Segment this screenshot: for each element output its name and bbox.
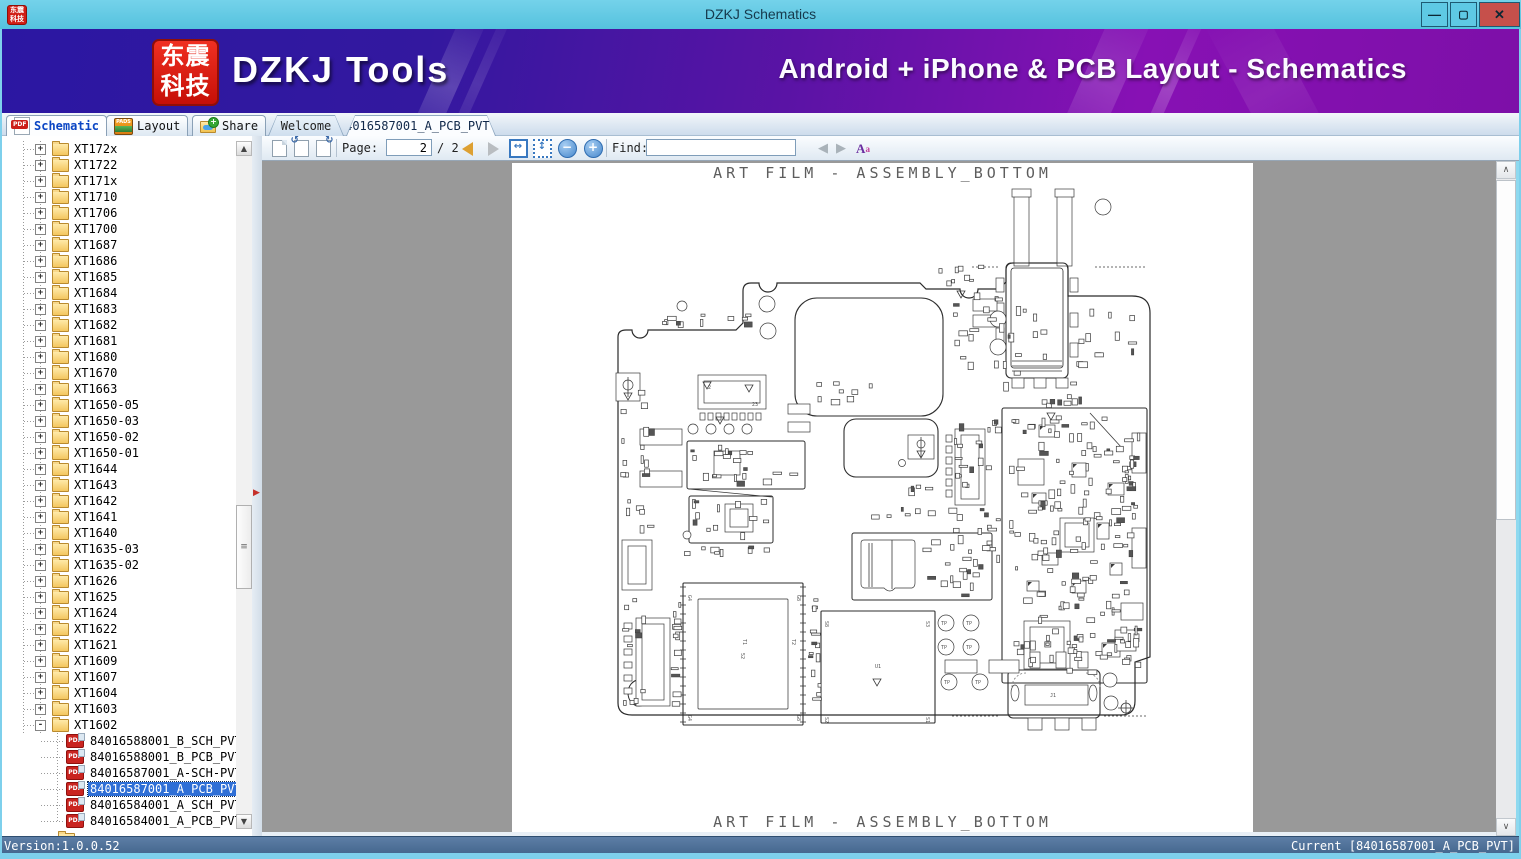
svg-text:TP: TP	[944, 680, 950, 686]
tree-stub	[24, 469, 35, 470]
tree-folder-label: XT1681	[72, 334, 119, 348]
folder-icon	[52, 255, 69, 268]
scroll-down-button[interactable]: ∨	[1496, 818, 1516, 836]
viewer-scrollbar-thumb[interactable]	[1496, 180, 1516, 520]
rotate-left-button[interactable]: ↺	[290, 138, 312, 159]
folder-icon	[52, 447, 69, 460]
tree-stub	[41, 789, 63, 790]
folder-icon	[52, 159, 69, 172]
expand-toggle-icon[interactable]: +	[35, 256, 46, 267]
expand-toggle-icon[interactable]: +	[35, 320, 46, 331]
tree-stub	[24, 693, 35, 694]
tree-stub	[24, 293, 35, 294]
tree-stub	[24, 725, 35, 726]
page-icon	[272, 140, 287, 157]
folder-icon	[52, 415, 69, 428]
pdf-file-icon: PDF	[66, 798, 84, 812]
arrow-up-icon: ▲	[241, 144, 247, 153]
expand-toggle-icon[interactable]: +	[35, 688, 46, 699]
tree-folder-label: XT1684	[72, 286, 119, 300]
banner-tagline: Android + iPhone & PCB Layout - Schemati…	[778, 53, 1407, 85]
expand-toggle-icon[interactable]: +	[35, 192, 46, 203]
rotate-right-icon: ↻	[316, 140, 331, 157]
find-label: Find:	[612, 141, 648, 155]
window-border	[0, 853, 1521, 859]
tree-stub	[24, 357, 35, 358]
expand-toggle-icon[interactable]: +	[35, 480, 46, 491]
expand-toggle-icon[interactable]: +	[35, 512, 46, 523]
expand-toggle-icon[interactable]: +	[35, 336, 46, 347]
tree-folder-label: XT1686	[72, 254, 119, 268]
tree-folder-row[interactable]: +XT1700	[2, 221, 236, 237]
pdf-file-icon: PDF	[66, 750, 84, 764]
expand-toggle-icon[interactable]: +	[35, 368, 46, 379]
maximize-button[interactable]: ▢	[1450, 2, 1477, 27]
share-folder-icon: +	[200, 119, 218, 133]
tree-folder-label: XT1643	[72, 478, 119, 492]
app-window: 东震科技 DZKJ Schematics — ▢ ✕ 东震科技 DZKJ Too…	[0, 0, 1521, 859]
expand-toggle-icon[interactable]: +	[35, 544, 46, 555]
expand-toggle-icon[interactable]: +	[35, 656, 46, 667]
tree-folder-row[interactable]: +XT1603	[2, 701, 236, 717]
collapse-toggle-icon[interactable]: -	[35, 720, 46, 731]
folder-icon	[52, 287, 69, 300]
folder-icon	[52, 527, 69, 540]
expand-toggle-icon[interactable]: +	[35, 560, 46, 571]
tree-folder-label: XT1680	[72, 350, 119, 364]
drawing-title-bottom: ART FILM - ASSEMBLY_BOTTOM	[512, 813, 1253, 831]
svg-text:T1: T1	[741, 639, 747, 645]
tree-stub	[24, 229, 35, 230]
tree-folder-label: XT1644	[72, 462, 119, 476]
tree-stub	[24, 645, 35, 646]
page-label: Page:	[342, 141, 378, 155]
arrow-down-icon: ▼	[241, 817, 247, 826]
tree-folder-row[interactable]: +XT1626	[2, 573, 236, 589]
tree-stub	[24, 389, 35, 390]
tree-stub	[24, 581, 35, 582]
tree-stub	[41, 757, 63, 758]
grip-icon: ≡	[240, 542, 248, 552]
svg-text:G8: G8	[795, 715, 801, 721]
folder-icon	[52, 495, 69, 508]
folder-icon	[52, 351, 69, 364]
expand-toggle-icon[interactable]: +	[35, 672, 46, 683]
tree-stub	[24, 325, 35, 326]
expand-toggle-icon[interactable]: +	[35, 592, 46, 603]
svg-text:52: 52	[739, 653, 745, 659]
folder-icon	[52, 687, 69, 700]
scroll-up-button[interactable]: ▲	[236, 141, 252, 156]
svg-text:G4: G4	[686, 595, 692, 601]
tree-folder-row[interactable]: +XT1635-03	[2, 541, 236, 557]
folder-icon	[52, 319, 69, 332]
folder-icon	[52, 463, 69, 476]
tree-folder-row[interactable]: +XT1681	[2, 333, 236, 349]
pads-icon: PADS	[114, 118, 133, 135]
svg-text:U1: U1	[875, 664, 881, 670]
tree-folder-row[interactable]: +XT1635-02	[2, 557, 236, 573]
folder-icon	[52, 607, 69, 620]
tab-label: Layout	[137, 119, 180, 133]
tab-label: Schematic	[34, 119, 99, 133]
tree-folder-label: XT1609	[72, 654, 119, 668]
tree-folder-label: XT1625	[72, 590, 119, 604]
tree-folder-row[interactable]: +XT1687	[2, 237, 236, 253]
tree-file-label: 84016584001_A_SCH_PVT	[88, 798, 244, 812]
tree-folder-label: XT172x	[72, 142, 119, 156]
next-page-button[interactable]	[482, 138, 504, 159]
find-previous-icon: ◀	[818, 141, 828, 156]
expand-toggle-icon[interactable]: +	[35, 176, 46, 187]
pdf-file-icon: PDF	[66, 814, 84, 828]
expand-toggle-icon[interactable]: +	[35, 352, 46, 363]
folder-icon	[52, 431, 69, 444]
tree-folder-row[interactable]: +XT1682	[2, 317, 236, 333]
tree-folder-label: XT1650-03	[72, 414, 141, 428]
svg-text:TP: TP	[941, 645, 947, 651]
tree-folder-label: XT1685	[72, 270, 119, 284]
tree-rows: +XT172x+XT1722+XT171x+XT1710+XT1706+XT17…	[2, 141, 236, 836]
viewer-scrollbar[interactable]: ∧ ∨	[1496, 161, 1516, 836]
pdf-viewer[interactable]: ART FILM - ASSEMBLY_BOTTOM 223S8S3S2S1U1…	[262, 161, 1496, 836]
zoom-out-button[interactable]: −	[556, 138, 578, 159]
tree-stub	[41, 805, 63, 806]
expand-toggle-icon[interactable]: +	[35, 240, 46, 251]
chevron-up-icon: ∧	[1503, 165, 1510, 175]
folder-icon	[52, 303, 69, 316]
tree-folder-label: XT1683	[72, 302, 119, 316]
folder-icon	[52, 399, 69, 412]
tree-folder-row[interactable]: +XT1621	[2, 637, 236, 653]
tree-file-row[interactable]: PDF84016584001_A_PCB_PVT	[2, 813, 236, 829]
tree-stub	[24, 517, 35, 518]
tree-file-row[interactable]: PDF84016587001_A-SCH-PVT	[2, 765, 236, 781]
folder-icon	[52, 175, 69, 188]
close-button[interactable]: ✕	[1479, 2, 1520, 27]
tree-file-row[interactable]: PDF84016584001_A_SCH_PVT	[2, 797, 236, 813]
tree-folder-row[interactable]: +XT1609	[2, 653, 236, 669]
tree-folder-row[interactable]: +XT1684	[2, 285, 236, 301]
zoom-in-button[interactable]: +	[582, 138, 604, 159]
folder-icon	[52, 639, 69, 652]
tree-file-label: 84016588001_B_PCB_PVT	[88, 750, 244, 764]
tree-folder-row[interactable]: +XT1650-05	[2, 397, 236, 413]
svg-text:J1: J1	[1050, 693, 1056, 699]
window-title: DZKJ Schematics	[0, 0, 1521, 29]
tab-strip: PDF Schematic PADS Layout + Share Welcom…	[2, 113, 1519, 136]
pdf-page: ART FILM - ASSEMBLY_BOTTOM 223S8S3S2S1U1…	[512, 163, 1253, 836]
tree-file-label: 84016588001_B_SCH_PVT	[88, 734, 244, 748]
expand-toggle-icon[interactable]: +	[35, 576, 46, 587]
tree-folder-row[interactable]: +XT1686	[2, 253, 236, 269]
pdf-file-icon: PDF	[66, 766, 84, 780]
tree-folder-label: XT1722	[72, 158, 119, 172]
tree-folder-row[interactable]: +XT1644	[2, 461, 236, 477]
tree-stub	[24, 437, 35, 438]
tree-stub	[24, 533, 35, 534]
svg-text:G4: G4	[686, 715, 692, 721]
tree-scrollbar[interactable]: ▲ ≡ ▼	[236, 141, 252, 829]
svg-text:S8: S8	[823, 621, 829, 627]
tree-stub	[24, 485, 35, 486]
pdf-file-icon: PDF	[66, 782, 84, 796]
tree-stub	[24, 613, 35, 614]
tree-folder-row[interactable]: +XT172x	[2, 141, 236, 157]
tree-file-label: 84016587001_A_PCB_PVT	[88, 782, 244, 796]
folder-icon	[52, 671, 69, 684]
tree-folder-row[interactable]: +XT1607	[2, 669, 236, 685]
tree-folder-label: XT1706	[72, 206, 119, 220]
tree-folder-label: XT1663	[72, 382, 119, 396]
previous-page-icon	[462, 142, 473, 156]
tree-folder-row[interactable]: +XT1670	[2, 365, 236, 381]
tree-scrollbar-thumb[interactable]: ≡	[236, 505, 252, 589]
tree-file-row[interactable]: PDF84016588001_B_SCH_PVT	[2, 733, 236, 749]
tree-stub	[24, 453, 35, 454]
folder-icon	[52, 239, 69, 252]
doc-tab-label: 84016587001_A_PCB_PVT	[338, 119, 490, 133]
tree-stub	[41, 773, 63, 774]
expand-toggle-icon[interactable]: +	[35, 704, 46, 715]
expand-toggle-icon[interactable]: +	[35, 272, 46, 283]
tree-folder-label: XT1710	[72, 190, 119, 204]
tree-file-row[interactable]: PDF84016587001_A_PCB_PVT	[2, 781, 236, 797]
tree-folder-row[interactable]: +XT1640	[2, 525, 236, 541]
expand-toggle-icon[interactable]: +	[35, 464, 46, 475]
tree-stub	[24, 629, 35, 630]
tree-stub	[24, 245, 35, 246]
version-text: Version:1.0.0.52	[4, 839, 120, 853]
tree-folder-row[interactable]: +XT1624	[2, 605, 236, 621]
expand-toggle-icon[interactable]: +	[35, 640, 46, 651]
tree-stub	[24, 709, 35, 710]
tree-folder-label: XT1687	[72, 238, 119, 252]
tree-stub	[24, 181, 35, 182]
tree-stub	[24, 373, 35, 374]
minimize-icon: —	[1428, 7, 1441, 22]
tree-stub	[24, 549, 35, 550]
tree-folder-label: XT1650-01	[72, 446, 141, 460]
tree-folder-row[interactable]: +XT1663	[2, 381, 236, 397]
tab-schematic[interactable]: PDF Schematic	[6, 115, 107, 136]
new-page-button[interactable]	[268, 138, 290, 159]
expand-toggle-icon[interactable]: +	[35, 224, 46, 235]
expand-toggle-icon[interactable]: +	[35, 208, 46, 219]
folder-icon	[52, 719, 69, 732]
tree-folder-label: XT1682	[72, 318, 119, 332]
tree-folder-row[interactable]: +XT1650-03	[2, 413, 236, 429]
folder-icon	[52, 511, 69, 524]
svg-text:TP: TP	[966, 621, 972, 627]
tab-label: Share	[222, 119, 258, 133]
tree-folder-label: XT1670	[72, 366, 119, 380]
tree-folder-row[interactable]: +XT1710	[2, 189, 236, 205]
tree-folder-row[interactable]: +XT1643	[2, 477, 236, 493]
svg-text:S1: S1	[924, 717, 930, 723]
tree-stub	[24, 341, 35, 342]
expand-toggle-icon[interactable]: +	[35, 624, 46, 635]
tree-stub	[24, 405, 35, 406]
schematic-tree-panel: +XT172x+XT1722+XT171x+XT1710+XT1706+XT17…	[2, 136, 252, 836]
tree-folder-label: XT1622	[72, 622, 119, 636]
doc-tab-welcome[interactable]: Welcome	[268, 115, 344, 136]
folder-icon	[52, 543, 69, 556]
tree-folder-label: XT1635-03	[72, 542, 141, 556]
scroll-up-button[interactable]: ∧	[1496, 161, 1516, 179]
tree-folder-row[interactable]: +XT1680	[2, 349, 236, 365]
tree-stub	[41, 821, 63, 822]
folder-icon	[52, 479, 69, 492]
panel-splitter[interactable]: ▶	[252, 136, 262, 836]
expand-toggle-icon[interactable]: +	[35, 608, 46, 619]
fit-width-icon: ↔	[509, 139, 528, 158]
tree-folder-row[interactable]: +XT171x	[2, 173, 236, 189]
tree-folder-row[interactable]: +XT1722	[2, 157, 236, 173]
tree-folder-row[interactable]: +XT1683	[2, 301, 236, 317]
tree-folder-row[interactable]: +XT1625	[2, 589, 236, 605]
folder-icon	[52, 655, 69, 668]
svg-text:TP: TP	[975, 680, 981, 686]
toolbar-separator	[606, 139, 607, 157]
brand-title: DZKJ Tools	[232, 49, 449, 91]
tree-folder-label: XT1650-05	[72, 398, 141, 412]
rotate-left-icon: ↺	[294, 140, 309, 157]
zoom-in-icon: +	[584, 139, 603, 158]
tree-folder-row[interactable]: +XT1641	[2, 509, 236, 525]
page-number-input[interactable]	[386, 139, 432, 156]
tab-layout[interactable]: PADS Layout	[106, 115, 188, 136]
doc-tab-current[interactable]: 84016587001_A_PCB_PVT ✕	[346, 115, 496, 136]
tab-share[interactable]: + Share	[192, 115, 266, 136]
find-next-button[interactable]: ▶	[830, 138, 852, 159]
svg-text:G8: G8	[795, 595, 801, 601]
tree-folder-label: XT1640	[72, 526, 119, 540]
tree-folder-row[interactable]: +XT1604	[2, 685, 236, 701]
tree-stub	[24, 309, 35, 310]
expand-toggle-icon[interactable]: +	[35, 400, 46, 411]
tree-folder-row[interactable]: -XT1602	[2, 717, 236, 733]
previous-page-button[interactable]	[456, 138, 478, 159]
tree-folder-label: XT1602	[72, 718, 119, 732]
tree-file-label: 84016584001_A_PCB_PVT	[88, 814, 244, 828]
tree-folder-label: XT1635-02	[72, 558, 141, 572]
tree-folder-label: XT1626	[72, 574, 119, 588]
svg-text:TP: TP	[941, 621, 947, 627]
expand-toggle-icon[interactable]: +	[35, 496, 46, 507]
banner: 东震科技 DZKJ Tools Android + iPhone & PCB L…	[2, 29, 1519, 113]
find-next-icon: ▶	[836, 141, 846, 156]
folder-icon	[52, 367, 69, 380]
find-input[interactable]	[646, 139, 796, 156]
minimize-button[interactable]: —	[1421, 2, 1448, 27]
tree-folder-label: XT171x	[72, 174, 119, 188]
tree-stub	[41, 741, 63, 742]
tree-stub	[24, 149, 35, 150]
tree-stub	[24, 277, 35, 278]
tree-stub	[24, 213, 35, 214]
folder-icon	[52, 223, 69, 236]
tree-stub	[24, 597, 35, 598]
maximize-icon: ▢	[1458, 8, 1468, 21]
tree-folder-label: XT1603	[72, 702, 119, 716]
current-document-text: Current [84016587001_A_PCB_PVT]	[1291, 839, 1515, 853]
tree-folder-row[interactable]: +XT1706	[2, 205, 236, 221]
expand-toggle-icon[interactable]: +	[35, 304, 46, 315]
doc-tab-close-icon[interactable]: ✕	[495, 119, 505, 134]
status-bar: Version:1.0.0.52 Current [84016587001_A_…	[0, 836, 1521, 853]
tree-folder-label: XT1621	[72, 638, 119, 652]
tree-stub	[24, 565, 35, 566]
expand-toggle-icon[interactable]: +	[35, 288, 46, 299]
tree-folder-label: XT1607	[72, 670, 119, 684]
fit-page-icon: ↕	[533, 139, 552, 158]
close-icon: ✕	[1494, 7, 1505, 23]
svg-text:TP: TP	[966, 645, 972, 651]
toolbar-separator	[336, 139, 337, 157]
svg-text:S2: S2	[823, 717, 829, 723]
tree-stub	[24, 165, 35, 166]
window-border	[0, 29, 2, 859]
fit-width-button[interactable]: ↔	[507, 138, 529, 159]
folder-icon	[52, 703, 69, 716]
folder-icon	[52, 207, 69, 220]
tree-stub	[24, 677, 35, 678]
rotate-right-button[interactable]: ↻	[312, 138, 334, 159]
tree-folder-row[interactable]: +XT1642	[2, 493, 236, 509]
tree-folder-label: XT1642	[72, 494, 119, 508]
folder-icon	[52, 271, 69, 284]
folder-icon	[52, 143, 69, 156]
expand-toggle-icon[interactable]: +	[35, 432, 46, 443]
tree-folder-label: XT1604	[72, 686, 119, 700]
pcb-drawing: 223S8S3S2S1U1G4G8G4G852T1T2J1TPTPTPTPTPT…	[512, 163, 1253, 836]
tree-stub	[24, 261, 35, 262]
title-bar: 东震科技 DZKJ Schematics — ▢ ✕	[0, 0, 1521, 29]
folder-icon	[52, 623, 69, 636]
match-case-button[interactable]: Aa	[852, 138, 874, 159]
tree-folder-label: XT1700	[72, 222, 119, 236]
expand-toggle-icon[interactable]: +	[35, 160, 46, 171]
expand-toggle-icon[interactable]: +	[35, 144, 46, 155]
tree-stub	[24, 197, 35, 198]
expand-toggle-icon[interactable]: +	[35, 448, 46, 459]
svg-text:T2: T2	[790, 639, 796, 645]
tree-stub	[24, 501, 35, 502]
tree-folder-row[interactable]: +XT1650-02	[2, 429, 236, 445]
fit-page-button[interactable]: ↕	[531, 138, 553, 159]
folder-icon	[52, 575, 69, 588]
expand-toggle-icon[interactable]: +	[35, 384, 46, 395]
brand-logo: 东震科技	[152, 39, 219, 106]
tree-folder-row[interactable]	[2, 829, 236, 836]
expand-toggle-icon[interactable]: +	[35, 528, 46, 539]
folder-icon	[52, 335, 69, 348]
folder-icon	[52, 591, 69, 604]
scroll-down-button[interactable]: ▼	[236, 814, 252, 829]
tree-folder-label: XT1624	[72, 606, 119, 620]
chevron-down-icon: ∨	[1503, 822, 1510, 832]
tree-file-row[interactable]: PDF84016588001_B_PCB_PVT	[2, 749, 236, 765]
tree-folder-row[interactable]: +XT1622	[2, 621, 236, 637]
svg-text:S3: S3	[924, 621, 930, 627]
expand-toggle-icon[interactable]: +	[35, 416, 46, 427]
tree-folder-row[interactable]: +XT1650-01	[2, 445, 236, 461]
svg-text:23: 23	[752, 402, 758, 408]
splitter-collapse-icon[interactable]: ▶	[253, 488, 260, 498]
tree-folder-row[interactable]: +XT1685	[2, 269, 236, 285]
pdf-toolbar: ↺ ↻ Page: / 2 ↔ ↕ − + Find: ◀ ▶ Aa	[262, 136, 1519, 161]
